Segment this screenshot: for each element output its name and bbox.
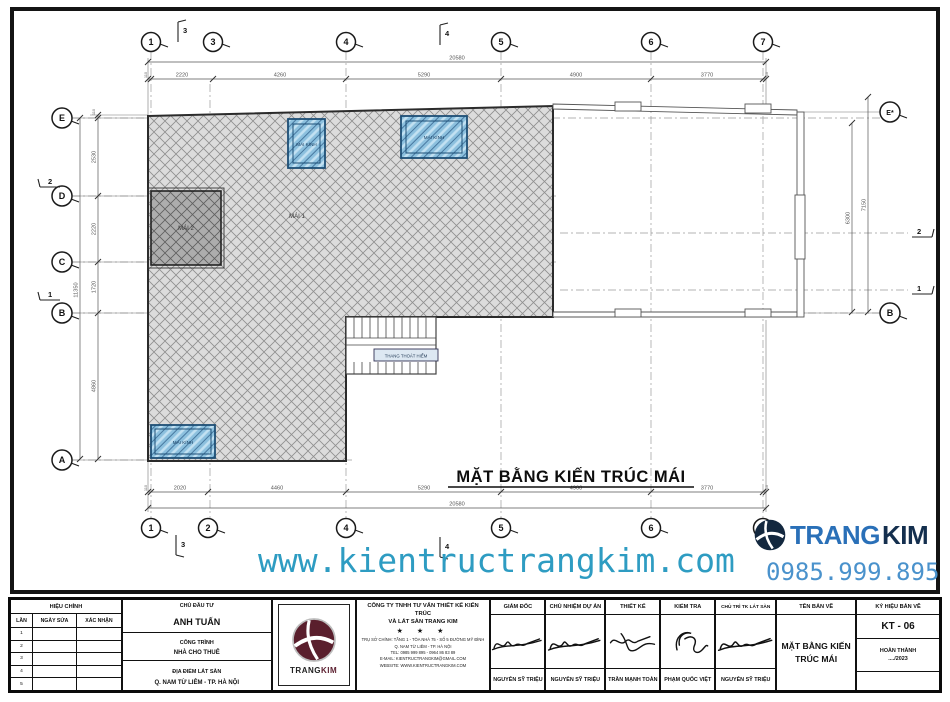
signature-name: TRẦN MẠNH TOÀN: [606, 668, 659, 690]
company-name-1: CÔNG TY TNHH TƯ VẤN THIẾT KẾ KIẾN TRÚC: [359, 603, 488, 619]
plan-title: MẶT BẰNG KIẾN TRÚC MÁI: [448, 467, 694, 487]
svg-text:3: 3: [181, 540, 185, 549]
svg-text:E: E: [59, 113, 65, 123]
signature-scribble: [546, 615, 604, 668]
svg-text:20580: 20580: [449, 502, 465, 508]
revision-row: 3: [11, 653, 121, 666]
brand-logo: TRANG KIM: [752, 517, 928, 553]
svg-text:6: 6: [648, 37, 653, 47]
signature-scribble: [606, 615, 659, 668]
svg-text:6300: 6300: [846, 212, 852, 224]
drawing-name-cell: TÊN BẢN VẼ MẶT BẰNG KIẾN TRÚC MÁI: [777, 600, 857, 690]
revision-row: 2: [11, 641, 121, 654]
svg-text:5290: 5290: [418, 486, 430, 492]
investor-label: CHỦ ĐẦU TƯ: [123, 600, 271, 612]
svg-text:4460: 4460: [271, 486, 283, 492]
signature-scribble: [661, 615, 714, 668]
skylight-label: MÁI KÍNH: [296, 141, 316, 147]
revision-col-lan: LẦN: [11, 614, 33, 627]
company-info: CÔNG TY TNHH TƯ VẤN THIẾT KẾ KIẾN TRÚC V…: [357, 600, 492, 690]
svg-text:6: 6: [648, 523, 653, 533]
signature-giam-doc: GIÁM ĐỐC NGUYỄN SỸ TRIỆU: [491, 600, 546, 690]
roof-plan-svg: MÁI 2 MÁI 1 MÁI KÍNH MÁI KÍNH MÁI KÍNH T…: [0, 0, 950, 598]
svg-text:110: 110: [143, 71, 148, 78]
svg-text:110: 110: [91, 108, 96, 115]
skylight-label: MÁI KÍNH: [424, 134, 444, 140]
revision-row: 1: [11, 628, 121, 641]
svg-text:1720: 1720: [92, 281, 98, 293]
signature-thiet-ke: THIẾT KẾ TRẦN MẠNH TOÀN: [606, 600, 661, 690]
signature-name: NGUYỄN SỸ TRIỆU: [716, 668, 775, 690]
svg-text:E*: E*: [886, 110, 894, 117]
brand-trang: TRANG: [790, 520, 880, 551]
company-logo-cell: TRANGKIM: [273, 600, 357, 690]
drawing-code: KT - 06: [857, 615, 939, 639]
svg-text:20580: 20580: [449, 56, 465, 62]
company-addr-1: TRỤ SỞ CHÍNH: TẦNG 1 - TÒA NHÀ 75 - SỐ 5…: [359, 637, 488, 643]
svg-text:3: 3: [183, 26, 187, 35]
svg-text:1: 1: [148, 523, 153, 533]
svg-text:7: 7: [760, 37, 765, 47]
svg-text:1: 1: [48, 290, 52, 299]
svg-text:11350: 11350: [74, 282, 80, 297]
work-name: NHÀ CHO THUÊ: [123, 646, 271, 661]
trangkim-logo-icon: [290, 616, 338, 664]
signature-name: NGUYỄN SỸ TRIỆU: [491, 668, 544, 690]
company-name-2: VÀ LÁT SÀN TRANG KIM: [359, 619, 488, 627]
company-website: WEBSITE: WWW.KIENTRUCTRANGKIM.COM: [359, 663, 488, 669]
signature-title: KIỂM TRA: [661, 600, 714, 615]
location-value: Q. NAM TỪ LIÊM - TP. HÀ NỘI: [123, 675, 271, 690]
svg-text:1: 1: [917, 284, 921, 293]
svg-text:5290: 5290: [418, 73, 430, 79]
work-label: CÔNG TRÌNH: [123, 633, 271, 646]
svg-text:110: 110: [143, 484, 148, 491]
drawing-name: MẶT BẰNG KIẾN TRÚC MÁI: [777, 615, 855, 690]
signature-name: NGUYỄN SỸ TRIỆU: [546, 668, 604, 690]
svg-text:B: B: [887, 308, 894, 318]
svg-text:2220: 2220: [176, 73, 188, 79]
signature-chu-tri: CHỦ TRÌ TK LÁT SÀN NGUYỄN SỸ TRIỆU: [716, 600, 777, 690]
svg-text:2: 2: [205, 523, 210, 533]
escape-stair: THANG THOÁT HIỂM: [346, 317, 438, 374]
status-date: ..../2023: [888, 656, 907, 662]
title-block: HIỆU CHỈNH LẦN NGÀY SỬA XÁC NHẬN 1 2 3 4…: [8, 597, 942, 693]
company-stars: ★ ★ ★: [359, 627, 488, 635]
signature-scribble: [716, 615, 775, 668]
mai1-label: MÁI 1: [289, 213, 305, 220]
revision-col-ngay: NGÀY SỬA: [33, 614, 77, 627]
brand-kim: KIM: [882, 520, 928, 551]
signature-chu-nhiem: CHỦ NHIỆM DỰ ÁN NGUYỄN SỸ TRIỆU: [546, 600, 606, 690]
svg-text:7150: 7150: [862, 199, 868, 211]
svg-text:110: 110: [764, 71, 769, 78]
trangkim-swirl-icon: [752, 517, 788, 553]
mai2-label: MÁI 2: [178, 225, 194, 232]
revision-table: HIỆU CHỈNH LẦN NGÀY SỬA XÁC NHẬN 1 2 3 4…: [11, 600, 123, 690]
revision-row: 4: [11, 666, 121, 679]
svg-text:2: 2: [48, 177, 52, 186]
svg-text:3: 3: [210, 37, 215, 47]
signature-title: CHỦ NHIỆM DỰ ÁN: [546, 600, 604, 615]
svg-text:2530: 2530: [92, 151, 98, 163]
revision-title: HIỆU CHỈNH: [11, 600, 121, 614]
drawing-status: HOÀN THÀNH ..../2023: [857, 639, 939, 672]
location-label: ĐỊA ĐIỂM LÁT SÀN: [123, 661, 271, 675]
svg-text:C: C: [59, 257, 66, 267]
empty-cell: [857, 672, 939, 690]
svg-text:2020: 2020: [174, 486, 186, 492]
signature-title: GIÁM ĐỐC: [491, 600, 544, 615]
stair-label: THANG THOÁT HIỂM: [385, 354, 428, 359]
svg-text:5: 5: [498, 523, 503, 533]
svg-text:4900: 4900: [570, 73, 582, 79]
svg-text:MẶT BẰNG KIẾN TRÚC MÁI: MẶT BẰNG KIẾN TRÚC MÁI: [456, 467, 685, 486]
watermark-url: www.kientructrangkim.com: [258, 541, 735, 580]
svg-text:D: D: [59, 191, 66, 201]
blueprint-page: MÁI 2 MÁI 1 MÁI KÍNH MÁI KÍNH MÁI KÍNH T…: [0, 0, 950, 702]
signature-title: THIẾT KẾ: [606, 600, 659, 615]
svg-text:110: 110: [764, 484, 769, 491]
drawing-code-label: KÝ HIỆU BẢN VẼ: [857, 600, 939, 615]
roof-mai2: MÁI 2: [148, 188, 224, 268]
drawing-name-label: TÊN BẢN VẼ: [777, 600, 855, 615]
skylight-3: MÁI KÍNH: [151, 425, 215, 458]
svg-text:4860: 4860: [92, 380, 98, 392]
svg-text:3770: 3770: [701, 73, 713, 79]
svg-text:5: 5: [498, 37, 503, 47]
svg-text:1: 1: [148, 37, 153, 47]
signature-scribble: [491, 615, 544, 668]
revision-subheader: LẦN NGÀY SỬA XÁC NHẬN: [11, 614, 121, 628]
signature-kiem-tra: KIỂM TRA PHẠM QUỐC VIỆT: [661, 600, 716, 690]
skylight-label: MÁI KÍNH: [173, 439, 193, 445]
svg-text:4: 4: [343, 37, 348, 47]
status-label: HOÀN THÀNH: [880, 648, 916, 654]
investor-name: ANH TUẤN: [123, 612, 271, 633]
signature-name: PHẠM QUỐC VIỆT: [661, 668, 714, 690]
revision-col-xacnhan: XÁC NHẬN: [77, 614, 121, 627]
skylight-1: MÁI KÍNH: [288, 119, 325, 168]
svg-text:4260: 4260: [274, 73, 286, 79]
logo-wordmark: TRANGKIM: [290, 666, 337, 675]
signature-title: CHỦ TRÌ TK LÁT SÀN: [716, 600, 775, 615]
watermark-phone: 0985.999.895: [766, 558, 939, 586]
svg-text:2: 2: [917, 227, 921, 236]
revision-row: 5: [11, 678, 121, 690]
svg-text:2220: 2220: [92, 223, 98, 235]
drawing-code-cell: KÝ HIỆU BẢN VẼ KT - 06 HOÀN THÀNH ..../2…: [857, 600, 939, 690]
svg-text:B: B: [59, 308, 66, 318]
svg-text:A: A: [59, 455, 66, 465]
project-info: CHỦ ĐẦU TƯ ANH TUẤN CÔNG TRÌNH NHÀ CHO T…: [123, 600, 273, 690]
svg-text:3770: 3770: [701, 486, 713, 492]
company-logo-box: TRANGKIM: [278, 604, 350, 686]
svg-text:4: 4: [343, 523, 348, 533]
skylight-2: MÁI KÍNH: [401, 116, 467, 158]
